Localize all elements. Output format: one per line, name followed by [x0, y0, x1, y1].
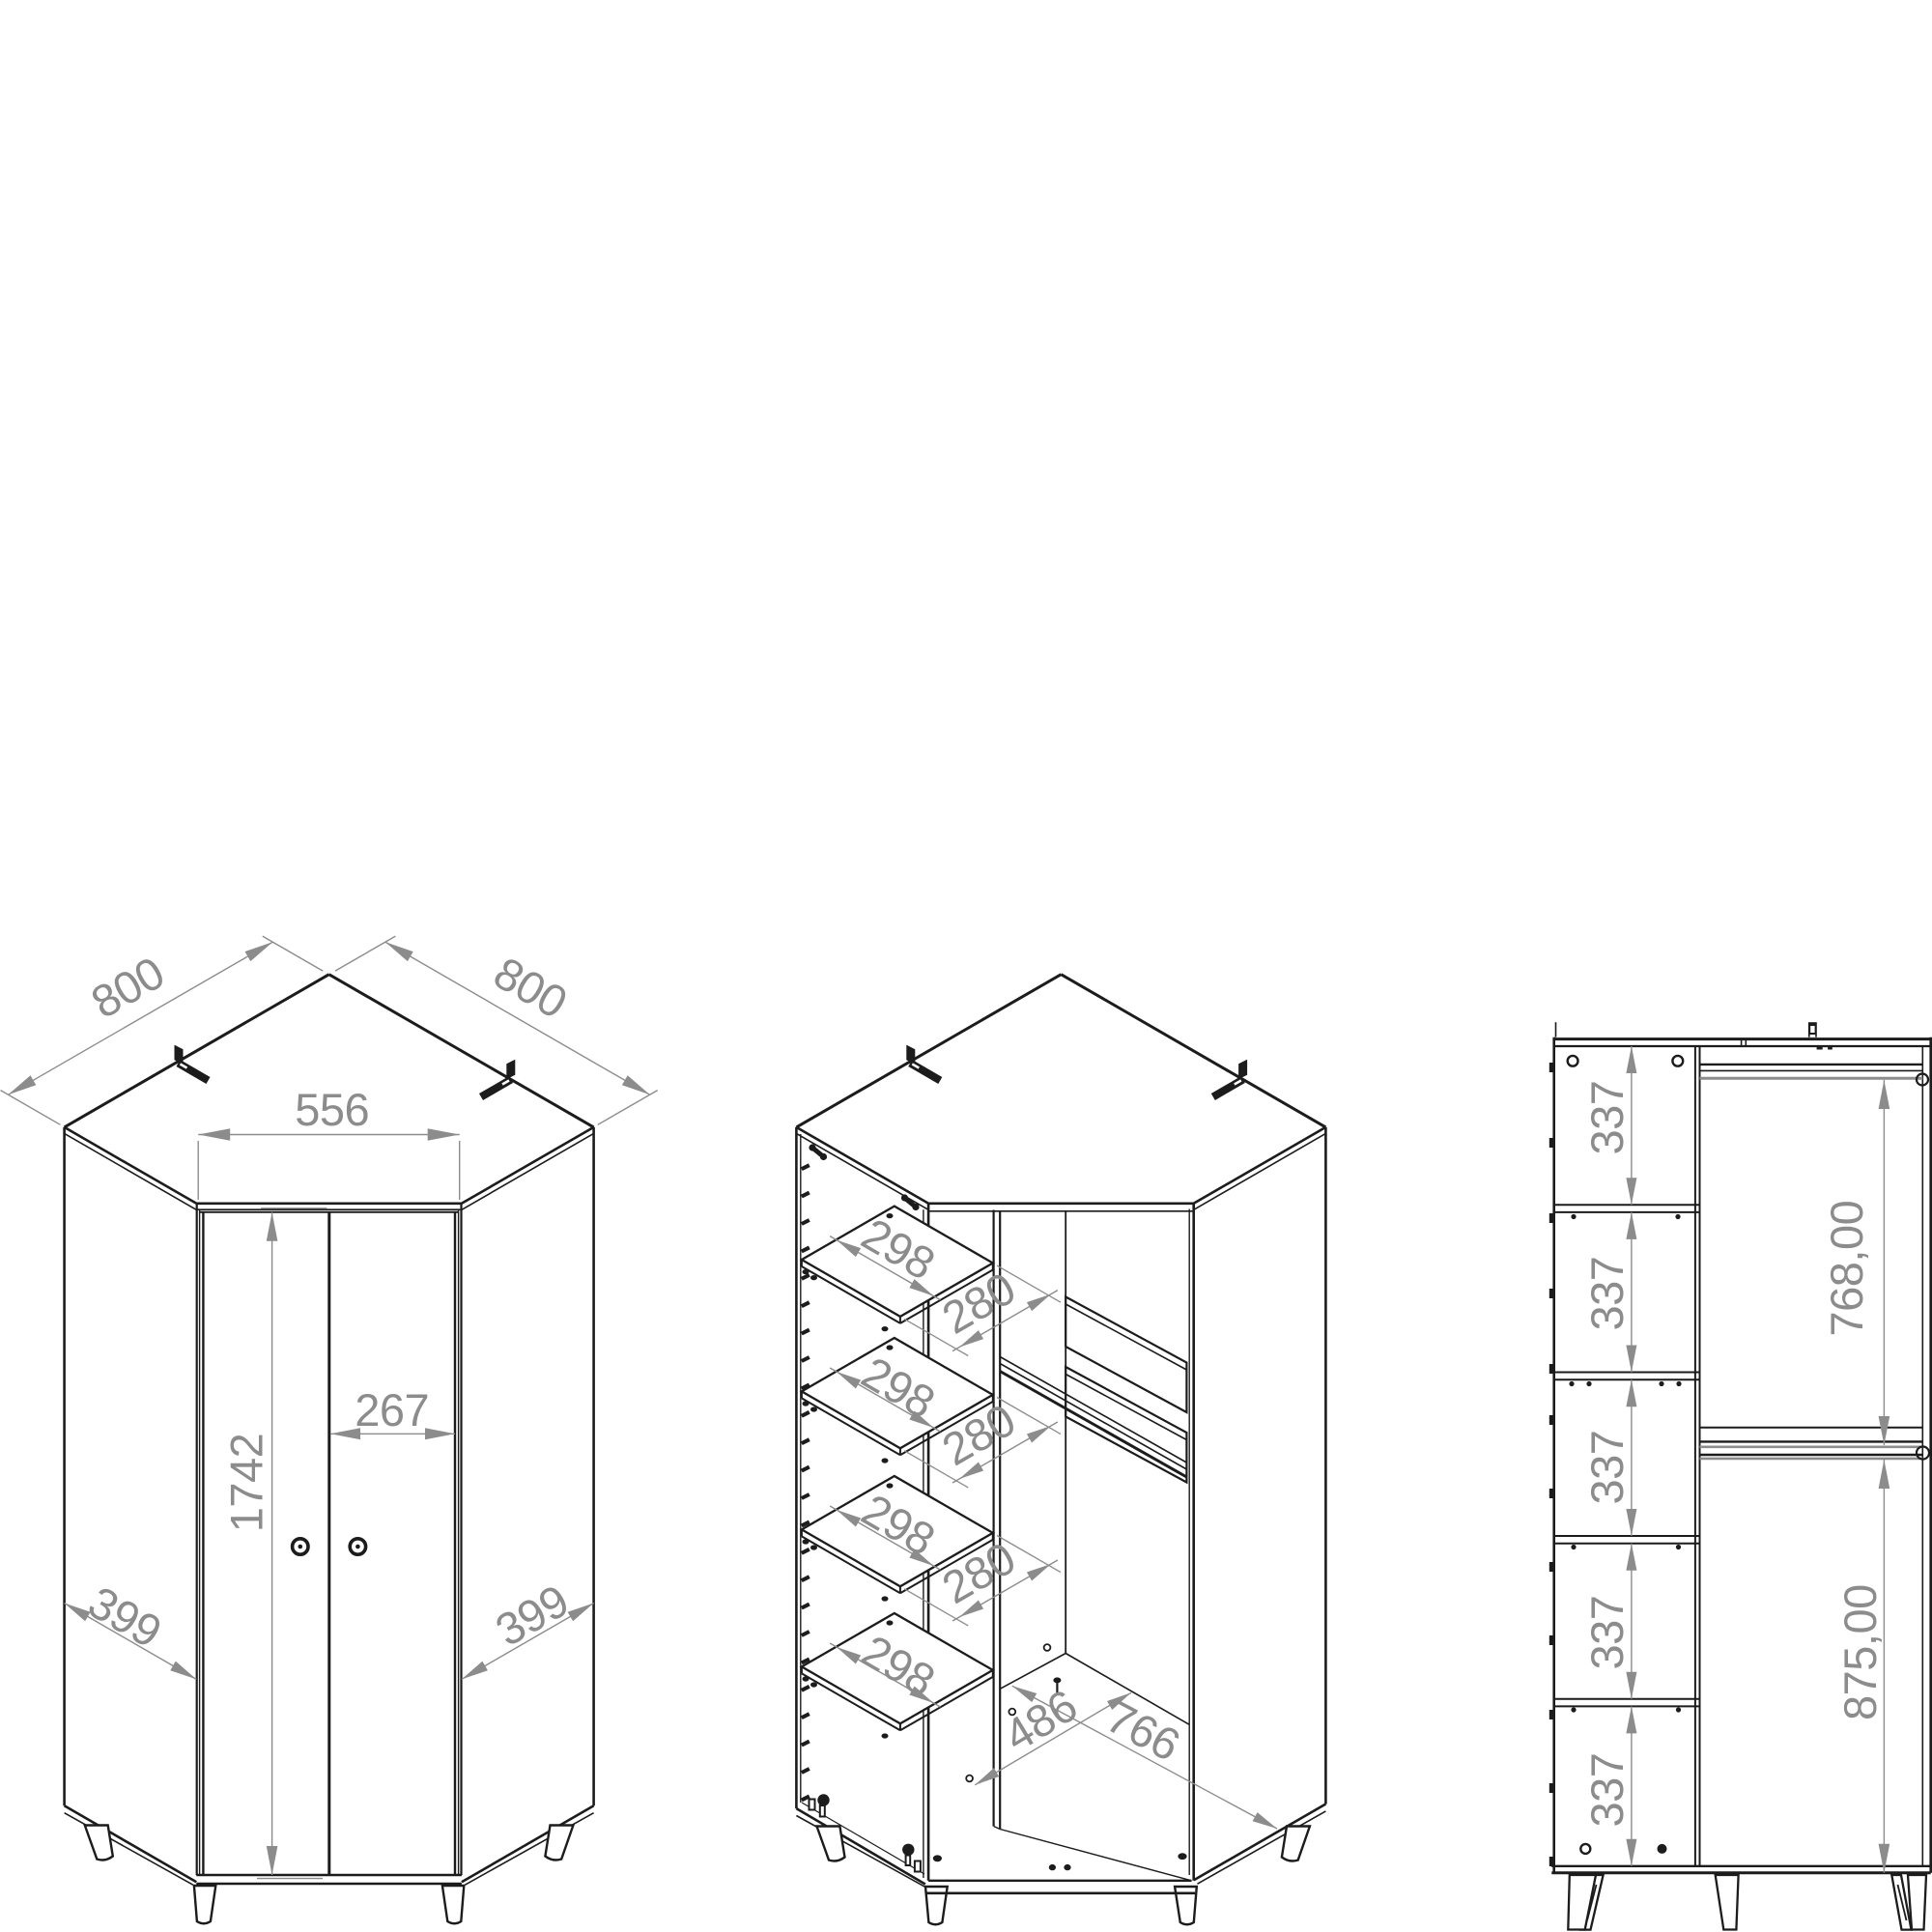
svg-text:337: 337 — [1581, 1081, 1633, 1155]
svg-text:337: 337 — [1581, 1753, 1633, 1828]
svg-text:875,00: 875,00 — [1834, 1584, 1886, 1720]
svg-text:768,00: 768,00 — [1821, 1201, 1872, 1337]
svg-text:556: 556 — [295, 1084, 369, 1135]
svg-text:337: 337 — [1581, 1596, 1633, 1670]
svg-text:337: 337 — [1581, 1431, 1633, 1505]
svg-text:1742: 1742 — [221, 1434, 272, 1533]
svg-text:337: 337 — [1581, 1257, 1633, 1331]
svg-text:267: 267 — [355, 1384, 429, 1435]
